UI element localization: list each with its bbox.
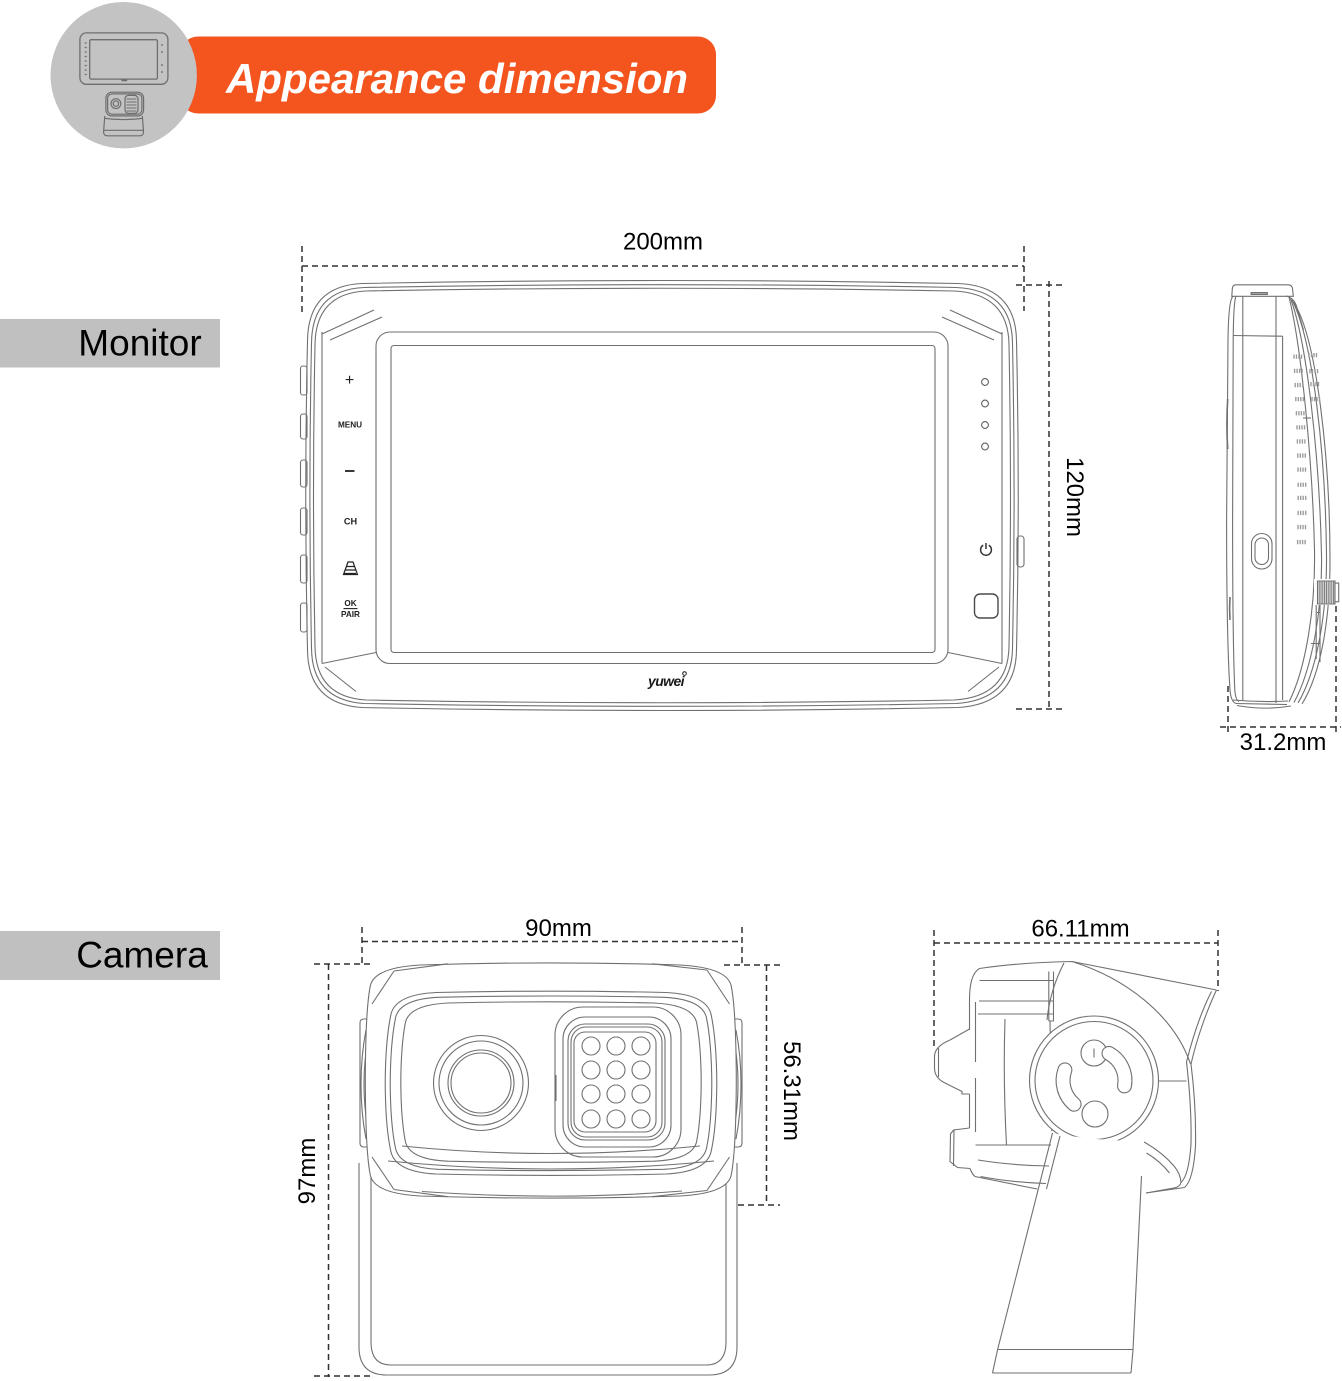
svg-text:+: + [345,372,354,389]
svg-text:56.31mm: 56.31mm [778,1041,805,1141]
svg-text:CH: CH [344,517,358,527]
svg-text:PAIR: PAIR [341,610,360,619]
svg-text:120mm: 120mm [1061,457,1088,537]
svg-text:Monitor: Monitor [78,323,201,364]
svg-text:200mm: 200mm [623,229,703,256]
svg-text:66.11mm: 66.11mm [1031,916,1129,943]
svg-text:97mm: 97mm [294,1138,321,1205]
svg-text:Camera: Camera [76,935,208,976]
svg-text:MENU: MENU [338,421,362,430]
svg-text:yuwei: yuwei [647,673,686,689]
svg-text:31.2mm: 31.2mm [1240,729,1327,756]
svg-text:OK: OK [344,599,356,608]
svg-text:90mm: 90mm [525,915,592,942]
svg-text:Appearance dimension: Appearance dimension [225,55,688,102]
